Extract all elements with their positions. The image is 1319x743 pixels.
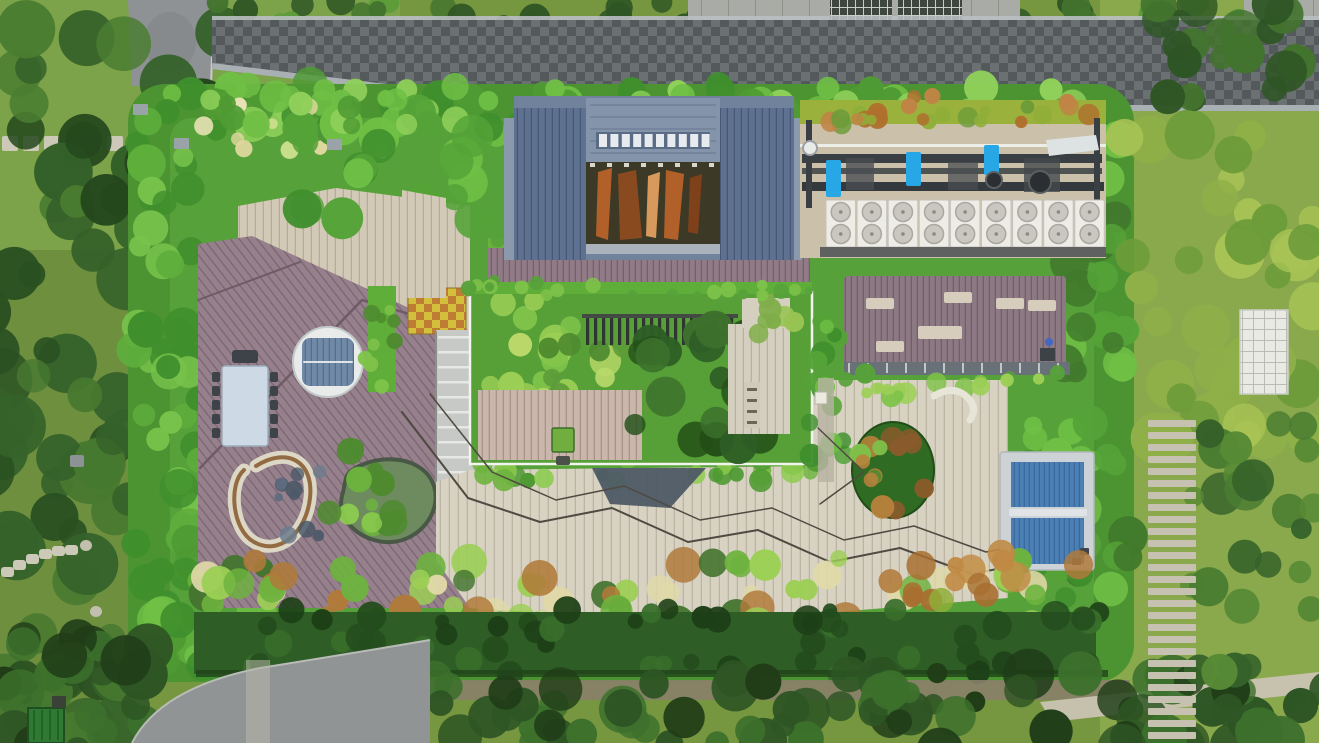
rooftop-garden-aerial-photo — [0, 0, 1319, 743]
dark-bin — [52, 696, 66, 708]
atrium-wing-left — [514, 108, 586, 260]
blue-marker-1 — [826, 160, 841, 197]
atrium-sill — [586, 244, 720, 254]
blue-marker-3 — [984, 145, 999, 175]
blue-marker-2 — [906, 152, 921, 186]
round-vent-2 — [986, 172, 1002, 188]
person-dot — [1045, 338, 1053, 346]
garden-green-table — [552, 428, 574, 452]
white-pergola-table — [1240, 310, 1288, 394]
skylight-shed-panel-1 — [1011, 462, 1084, 507]
hvac-equipment-2 — [948, 162, 978, 190]
chair-head — [232, 350, 258, 363]
hvac-white-gauge — [803, 141, 817, 155]
left-lawn-bench — [70, 455, 84, 467]
dining-table — [222, 366, 268, 446]
atrium-flank-left — [504, 118, 514, 260]
hvac-vert-pipe-1 — [806, 120, 812, 208]
hvac-condenser-row — [826, 200, 1104, 247]
atrium-wing-right — [720, 108, 794, 260]
deck-bench-large — [918, 326, 962, 339]
vertical-pale-path — [246, 660, 270, 743]
right-mauve-deck — [844, 276, 1066, 368]
hvac-equipment-1 — [846, 158, 874, 190]
round-vent-1 — [1029, 171, 1051, 193]
scene-svg — [0, 0, 1319, 743]
atrium-glass-roof — [586, 98, 720, 164]
skylight-shed-divider — [1009, 509, 1087, 516]
pale-path-strip — [402, 190, 446, 298]
gray-walkway — [844, 362, 1070, 375]
white-cart — [815, 392, 827, 404]
garden-chair — [556, 456, 570, 465]
hvac-base-band — [820, 247, 1106, 257]
deck-dark-item — [1040, 348, 1055, 361]
